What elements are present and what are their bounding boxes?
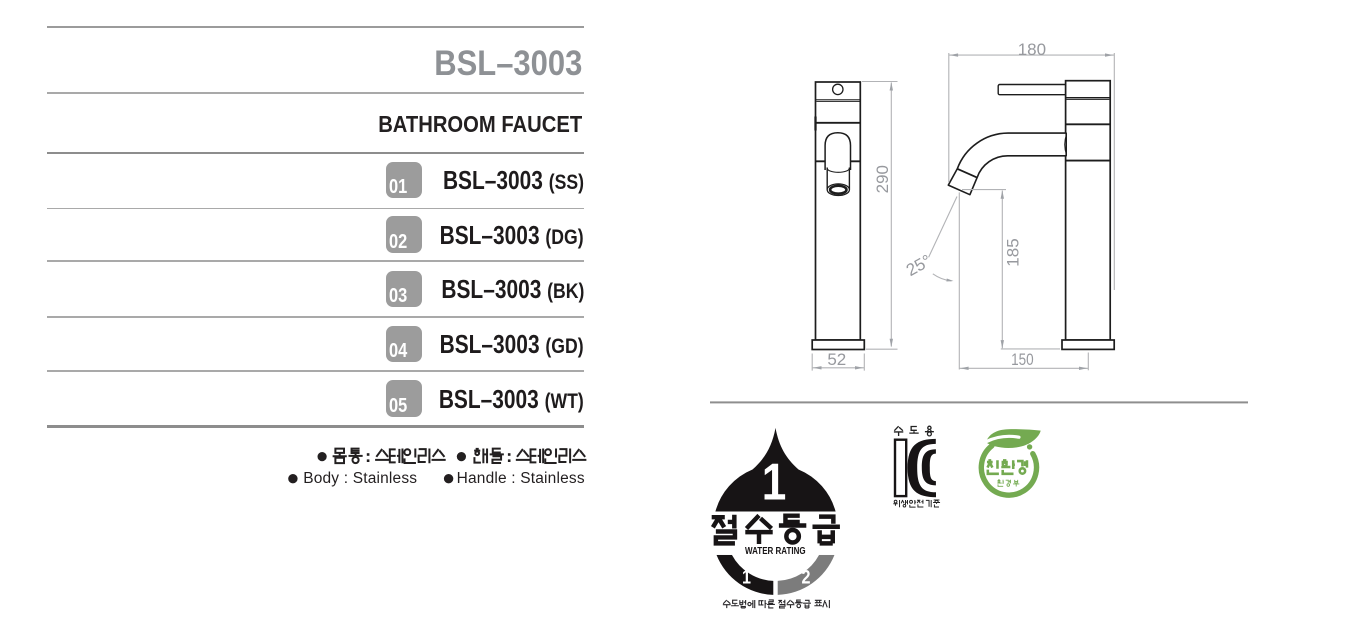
svg-text:Body : Stainless: Body : Stainless bbox=[303, 470, 417, 487]
svg-text:Handle : Stainless: Handle : Stainless bbox=[457, 470, 585, 487]
svg-text:180: 180 bbox=[1018, 40, 1046, 59]
svg-text:290: 290 bbox=[873, 165, 892, 193]
svg-text:1: 1 bbox=[742, 566, 751, 588]
svg-text:150: 150 bbox=[1011, 351, 1034, 370]
svg-text:2: 2 bbox=[802, 566, 811, 588]
svg-text:185: 185 bbox=[1004, 238, 1023, 266]
svg-text:52: 52 bbox=[827, 350, 846, 369]
svg-text:WATER RATING: WATER RATING bbox=[745, 545, 806, 556]
svg-text:1: 1 bbox=[762, 453, 787, 511]
